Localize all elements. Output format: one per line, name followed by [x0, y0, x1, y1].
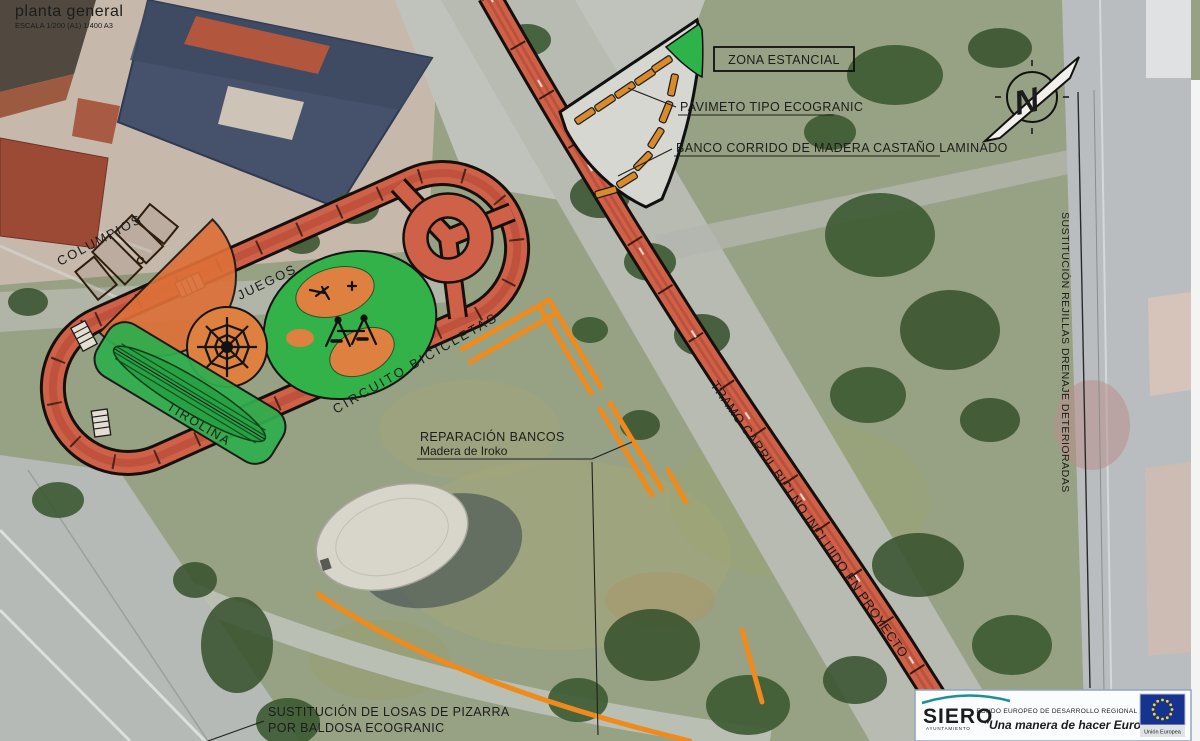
siero-logo-subtext: AYUNTAMIENTO	[926, 726, 971, 731]
eu-flag-label: Unión Europea	[1144, 730, 1182, 736]
eu-flag-icon: Unión Europea	[1140, 694, 1185, 737]
footer-logo-block: SIERO AYUNTAMIENTO FONDO EUROPEO DE DESA…	[915, 690, 1191, 741]
banco-corrido-label: BANCO CORRIDO DE MADERA CASTAÑO LAMINADO	[676, 141, 1008, 155]
plan-scale: ESCALA 1/200 (A1) 1/400 A3	[15, 21, 113, 30]
sheet-edge-strip	[1191, 80, 1200, 741]
feder-motto: "Una manera de hacer Europa"	[983, 718, 1161, 732]
plan-title: planta general	[15, 3, 123, 20]
site-plan-sheet: N planta general ESCALA 1/200 (A1) 1/400…	[0, 0, 1200, 741]
losas-label-1: SUSTITUCIÓN DE LOSAS DE PIZARRA	[268, 704, 510, 719]
reparacion-bancos-label: REPARACIÓN BANCOS	[420, 429, 565, 444]
pavimento-label: PAVIMETO TIPO ECOGRANIC	[680, 100, 863, 114]
zona-estancial-label: ZONA ESTANCIAL	[728, 53, 840, 67]
losas-label-2: POR BALDOSA ECOGRANIC	[268, 721, 445, 735]
rejillas-label: SUSTITUCIÓN REJILLAS DRENAJE DETERIORADA…	[1059, 212, 1072, 493]
madera-iroko-label: Madera de Iroko	[420, 444, 508, 458]
site-plan-canvas: N planta general ESCALA 1/200 (A1) 1/400…	[0, 0, 1200, 741]
feder-label: FONDO EUROPEO DE DESARROLLO REGIONAL (FE…	[976, 708, 1167, 715]
